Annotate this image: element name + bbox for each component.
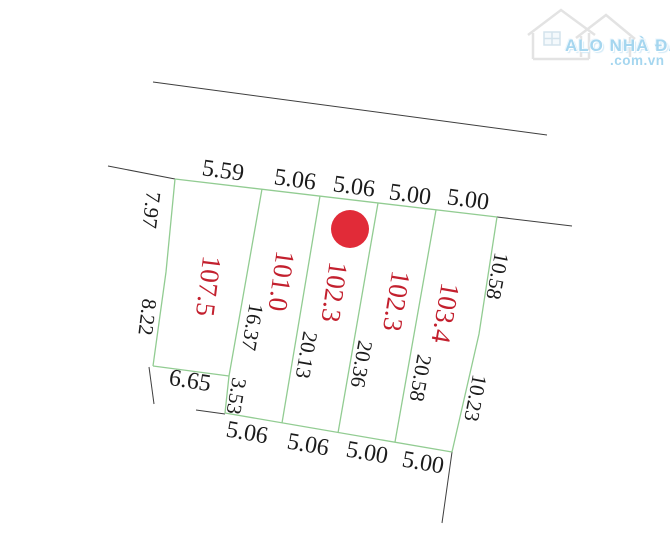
dimension-label-top-5: 5.00 [446, 185, 491, 215]
dimension-label-top-4: 5.00 [388, 180, 433, 210]
dimension-label-top-3: 5.06 [332, 172, 377, 202]
road-line [153, 82, 547, 135]
location-marker-dot [331, 210, 369, 248]
top-left-extension-line [108, 166, 175, 179]
parcel-area-label-3: 102.3 [316, 260, 351, 324]
dimension-label-top-2: 5.06 [273, 165, 318, 195]
parcel-area-label-1: 107.5 [191, 254, 225, 318]
top-right-extension-line [497, 217, 572, 226]
domain-text: .com.vn [610, 53, 665, 68]
dimension-label-left-2: 8.22 [134, 297, 159, 336]
dimension-label-bottom-1: 6.65 [167, 366, 212, 396]
dimension-label-top-1: 5.59 [201, 156, 246, 186]
parcel-area-label-2: 101.0 [263, 249, 298, 313]
left-lower-extension-line [149, 367, 154, 404]
dimension-label-divider-1b: 3.53 [222, 376, 249, 416]
land-plot-diagram: 5.59 5.06 5.06 5.00 5.00 6.65 5.06 5.06 … [0, 0, 670, 536]
dimension-label-left-1: 7.97 [138, 190, 163, 229]
